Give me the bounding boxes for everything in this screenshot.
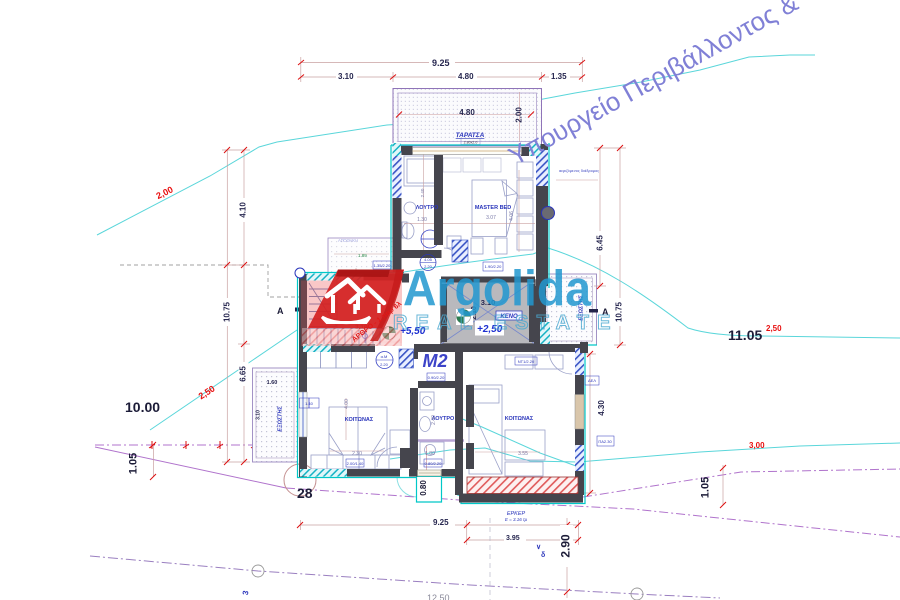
- svg-text:12.50: 12.50: [427, 593, 450, 600]
- svg-text:3.55: 3.55: [518, 451, 528, 457]
- svg-text:3.07: 3.07: [486, 215, 496, 221]
- svg-text:α.Μ: α.Μ: [381, 354, 388, 359]
- svg-text:1.30: 1.30: [417, 217, 427, 223]
- svg-text:28: 28: [297, 485, 313, 501]
- svg-text:1.40: 1.40: [305, 401, 314, 406]
- svg-text:Argolida: Argolida: [403, 261, 592, 317]
- svg-text:4.30: 4.30: [597, 400, 606, 416]
- svg-text:2.00: 2.00: [515, 107, 524, 123]
- svg-text:Ε = 3.16 τμ: Ε = 3.16 τμ: [505, 517, 528, 522]
- svg-text:1.05: 1.05: [127, 453, 139, 474]
- svg-text:1.35: 1.35: [551, 72, 567, 81]
- svg-text:REAL ESTATE: REAL ESTATE: [393, 312, 617, 334]
- svg-text:δ: δ: [541, 552, 545, 559]
- svg-text:4.06: 4.06: [509, 211, 515, 221]
- svg-text:A: A: [277, 306, 284, 316]
- svg-text:2.80x2.0: 2.80x2.0: [464, 141, 478, 145]
- svg-text:4.00: 4.00: [344, 399, 350, 409]
- svg-text:ΤΑΡΑΤΣΑ: ΤΑΡΑΤΣΑ: [456, 132, 485, 139]
- svg-text:ΕΞΩΣΤΗΣ: ΕΞΩΣΤΗΣ: [277, 406, 283, 432]
- svg-text:0.80/2.20: 0.80/2.20: [425, 461, 442, 466]
- svg-text:3,00: 3,00: [749, 441, 765, 450]
- svg-text:ΚΟΙΤΩΝΑΣ: ΚΟΙΤΩΝΑΣ: [345, 417, 374, 423]
- svg-text:10.75: 10.75: [223, 301, 232, 322]
- svg-text:αεριζόμενος διάδρομος: αεριζόμενος διάδρομος: [559, 169, 599, 173]
- svg-text:6.45: 6.45: [596, 235, 605, 251]
- svg-text:M2: M2: [422, 351, 447, 371]
- svg-text:ΔΕΛ: ΔΕΛ: [588, 378, 596, 383]
- svg-text:3.10: 3.10: [338, 72, 354, 81]
- svg-text:MASTER BED: MASTER BED: [475, 205, 511, 211]
- svg-text:3.10: 3.10: [255, 410, 261, 420]
- svg-text:1.80: 1.80: [425, 451, 435, 457]
- svg-text:ΝΤ1/2.20: ΝΤ1/2.20: [518, 359, 535, 364]
- svg-text:∨: ∨: [536, 544, 541, 551]
- svg-text:2.30: 2.30: [352, 451, 362, 457]
- svg-text:0.80: 0.80: [419, 480, 428, 496]
- svg-text:2.40: 2.40: [431, 415, 437, 425]
- svg-text:9.25: 9.25: [433, 518, 449, 527]
- svg-text:1.05: 1.05: [699, 477, 711, 498]
- svg-text:1.89: 1.89: [358, 253, 367, 258]
- svg-text:ΠΑ2.30: ΠΑ2.30: [598, 439, 612, 444]
- svg-text:6.65: 6.65: [239, 366, 248, 382]
- svg-text:0.90/2.20: 0.90/2.20: [428, 375, 445, 380]
- svg-text:10.00: 10.00: [125, 399, 160, 415]
- svg-text:4.80: 4.80: [459, 108, 475, 117]
- svg-text:3.95: 3.95: [506, 535, 520, 542]
- svg-text:1.60: 1.60: [267, 380, 278, 386]
- svg-text:2.00/1.40: 2.00/1.40: [347, 461, 364, 466]
- svg-text:11.05: 11.05: [728, 327, 762, 343]
- svg-text:2.20: 2.20: [380, 362, 389, 367]
- svg-text:4.80: 4.80: [458, 72, 474, 81]
- svg-text:1.35/2.20: 1.35/2.20: [374, 263, 391, 268]
- svg-text:2,50: 2,50: [766, 324, 782, 333]
- svg-text:9.25: 9.25: [432, 58, 450, 68]
- svg-text:4.10: 4.10: [239, 202, 248, 218]
- svg-text:2.40: 2.40: [420, 188, 425, 197]
- svg-text:ΛΟΥΤΡΟ: ΛΟΥΤΡΟ: [416, 205, 439, 211]
- svg-text:ΚΟΙΤΩΝΑΣ: ΚΟΙΤΩΝΑΣ: [505, 416, 534, 422]
- svg-text:2.90: 2.90: [559, 534, 573, 558]
